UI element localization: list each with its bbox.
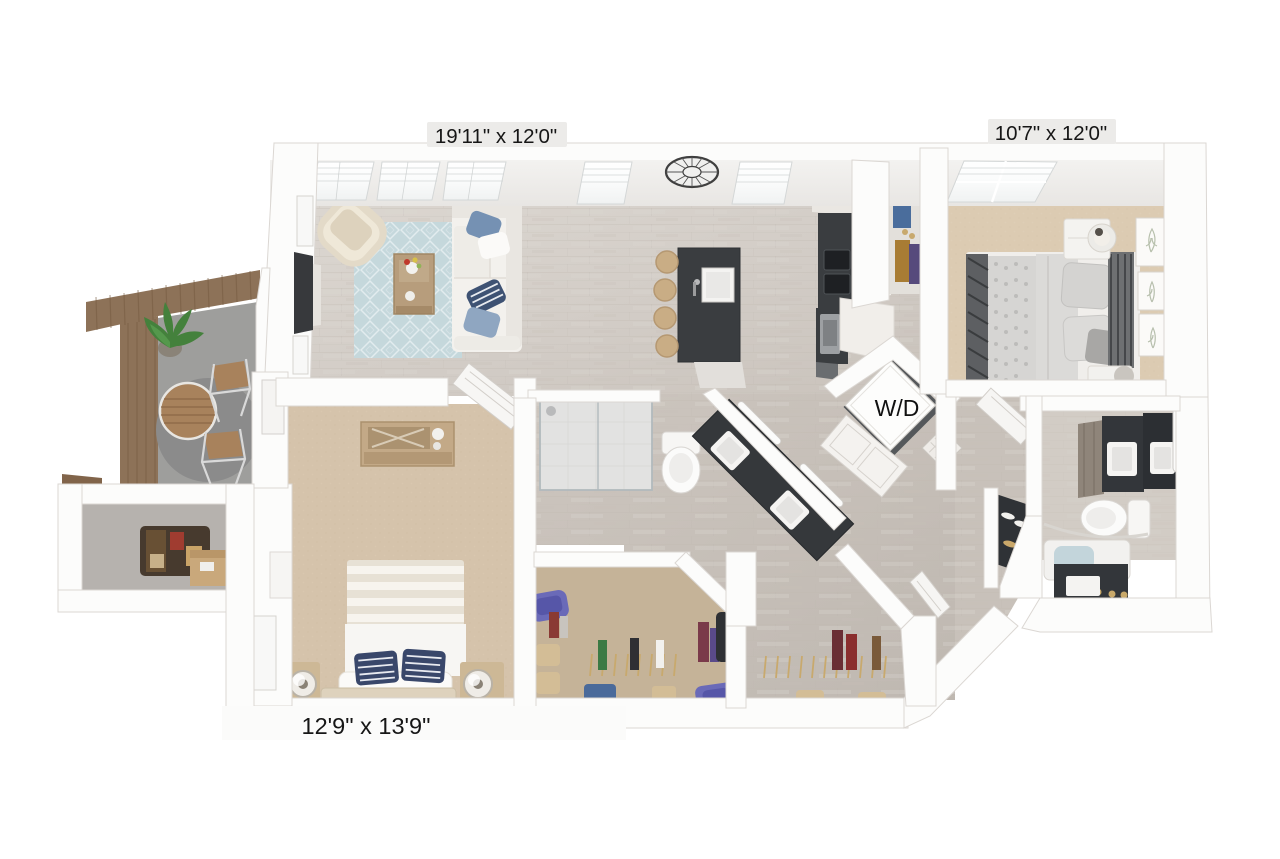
svg-text:10'7" x 12'0": 10'7" x 12'0" (995, 122, 1107, 145)
svg-text:12'9" x 13'9": 12'9" x 13'9" (302, 713, 431, 739)
svg-text:19'11" x 12'0": 19'11" x 12'0" (435, 125, 557, 148)
svg-text:W/D: W/D (875, 395, 920, 421)
